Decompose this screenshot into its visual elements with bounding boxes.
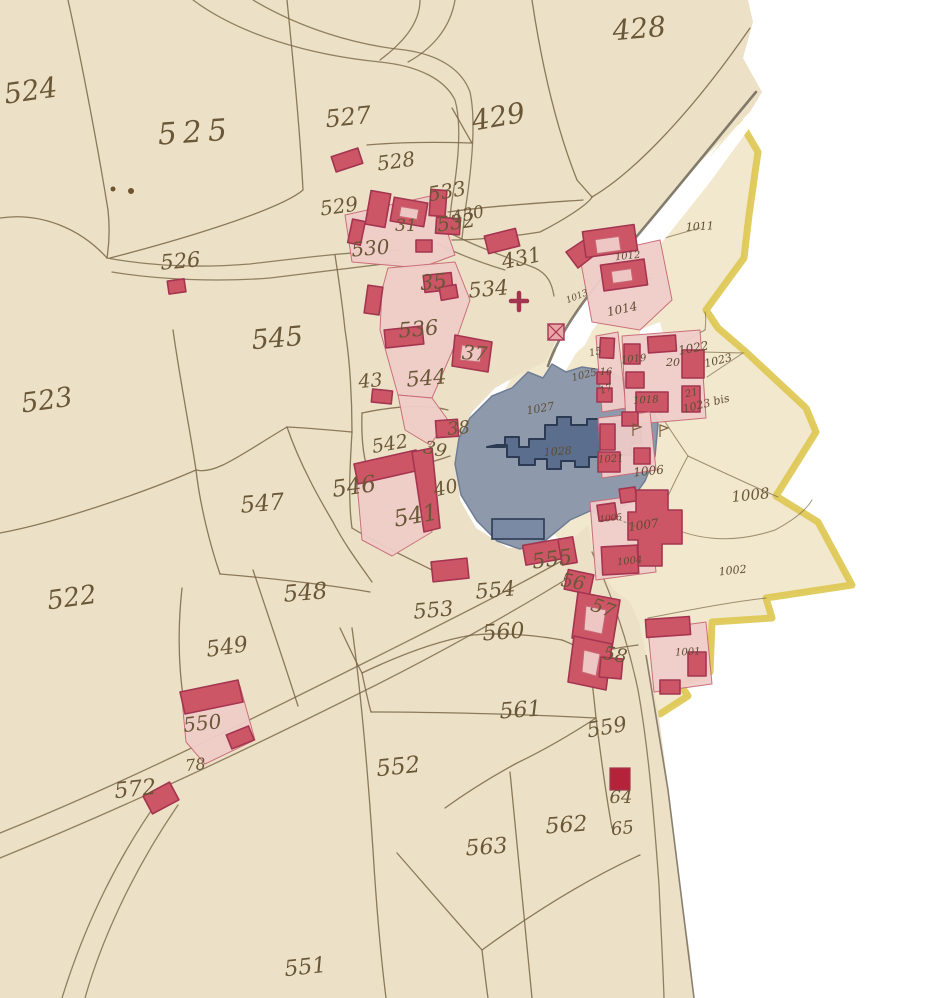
parcel-label-548: 548: [282, 578, 328, 608]
hatched-square-icon: [548, 324, 564, 340]
parcel-label-38: 38: [446, 417, 471, 440]
parcel-label-1021: 1021: [598, 453, 624, 465]
parcel-label-563: 563: [465, 834, 509, 862]
map-dot: [111, 187, 116, 192]
parcel-label-530: 530: [350, 234, 390, 261]
parcel-label-526: 526: [159, 247, 201, 274]
parcel-label-547: 547: [239, 489, 285, 519]
parcel-label-534: 534: [467, 275, 509, 302]
parcel-label-572: 572: [113, 775, 157, 804]
parcel-label-553: 553: [412, 596, 454, 623]
parcel-label-1028: 1028: [543, 444, 572, 459]
parcel-label-560: 560: [482, 619, 526, 647]
parcel-label-545: 545: [250, 321, 304, 356]
parcel-label-562: 562: [545, 812, 589, 840]
parcel-label-527: 527: [324, 101, 373, 134]
parcel-label-37: 37: [461, 340, 489, 366]
parcel-label-65: 65: [610, 817, 635, 840]
parcel-label-1001: 1001: [675, 646, 701, 658]
parcel-label-525: 525: [157, 112, 235, 152]
map-dot: [128, 188, 134, 194]
parcel-label-536: 536: [397, 315, 439, 342]
parcel-label-544: 544: [405, 364, 447, 391]
parcel-label-64: 64: [610, 787, 633, 808]
parcel-label-1018: 1018: [633, 394, 659, 406]
parcel-label-554: 554: [474, 576, 516, 603]
pond-annex-building: [492, 519, 544, 539]
parcel-label-552: 552: [375, 752, 421, 782]
parcel-label-561: 561: [499, 697, 543, 725]
parcel-label-31: 31: [395, 216, 417, 236]
parcel-label-1011: 1011: [685, 219, 714, 233]
parcel-label-16: 16: [600, 367, 613, 378]
parcel-label-43: 43: [356, 369, 383, 393]
parcel-label-20: 20: [665, 356, 680, 369]
parcel-label-56: 56: [559, 569, 587, 595]
parcel-label-428: 428: [610, 10, 667, 48]
parcel-label-58: 58: [601, 642, 629, 668]
cadastral-map-stage: 5245255274284295285295333153253043052643…: [0, 0, 941, 998]
parcel-label-551: 551: [283, 953, 327, 982]
parcel-label-550: 550: [182, 709, 223, 737]
cadastral-map: 5245255274284295285295333153253043052643…: [0, 0, 941, 998]
parcel-label-78: 78: [184, 754, 206, 775]
parcel-label-35: 35: [419, 269, 448, 295]
